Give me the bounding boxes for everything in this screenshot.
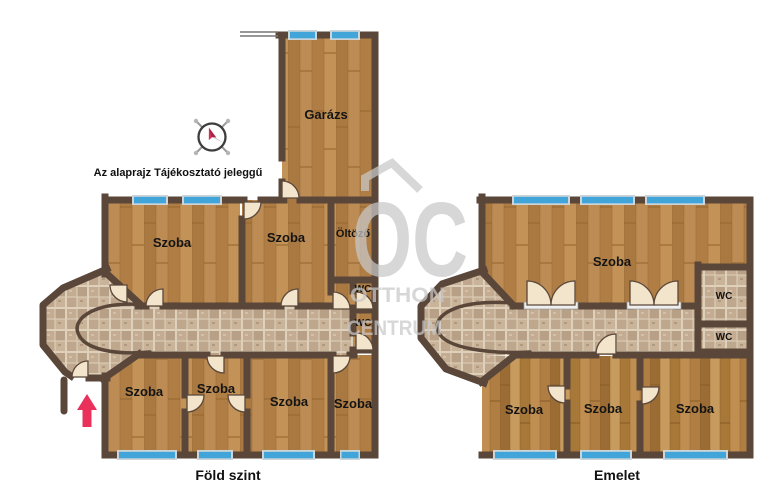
room-label: Szoba <box>334 396 373 411</box>
window <box>645 195 705 205</box>
window <box>132 195 168 205</box>
window <box>262 450 315 460</box>
watermark-initials: OC <box>352 181 468 299</box>
hallway-floor <box>105 306 353 355</box>
upper-floor-title: Emelet <box>594 467 640 483</box>
compass-icon <box>194 119 230 155</box>
window <box>330 30 360 40</box>
window <box>512 195 570 205</box>
room-label-garage: Garázs <box>304 107 347 122</box>
room-label-wc: WC <box>716 291 733 302</box>
upper-floor-plan: Szoba WC WC Szoba Szoba Szoba Emelet <box>421 195 750 483</box>
window <box>340 450 360 460</box>
window <box>663 450 728 460</box>
floorplan-svg: Garázs Szoba Szoba Öltöző WC WC Szoba Sz… <box>0 0 773 500</box>
room-label: Szoba <box>197 381 236 396</box>
window <box>117 450 177 460</box>
disclaimer-text: Az alaprajz Tájékosztató jeleggű <box>94 167 263 179</box>
ground-floor-plan: Garázs Szoba Szoba Öltöző WC WC Szoba Sz… <box>43 30 375 483</box>
watermark-line1: OTTHON <box>350 284 445 307</box>
ground-floor-title: Föld szint <box>195 467 261 483</box>
floorplan-canvas: Garázs Szoba Szoba Öltöző WC WC Szoba Sz… <box>0 0 773 500</box>
room-label: Szoba <box>584 401 623 416</box>
window <box>493 450 557 460</box>
window <box>197 450 233 460</box>
room-label: Szoba <box>676 401 715 416</box>
room-label: Szoba <box>505 402 544 417</box>
room-label: Szoba <box>270 394 309 409</box>
watermark-line2: CENTRUM <box>347 317 442 340</box>
room-label: Szoba <box>153 235 192 250</box>
window <box>580 450 632 460</box>
gate-line <box>240 32 278 36</box>
room-label: Szoba <box>125 384 164 399</box>
room-label: Szoba <box>593 254 632 269</box>
window <box>580 195 635 205</box>
window <box>182 195 222 205</box>
hallway-floor <box>482 306 698 355</box>
entrance-arrow-icon <box>77 394 97 427</box>
room-label: Szoba <box>267 230 306 245</box>
room-label-wc: WC <box>716 332 733 343</box>
window <box>288 30 317 40</box>
